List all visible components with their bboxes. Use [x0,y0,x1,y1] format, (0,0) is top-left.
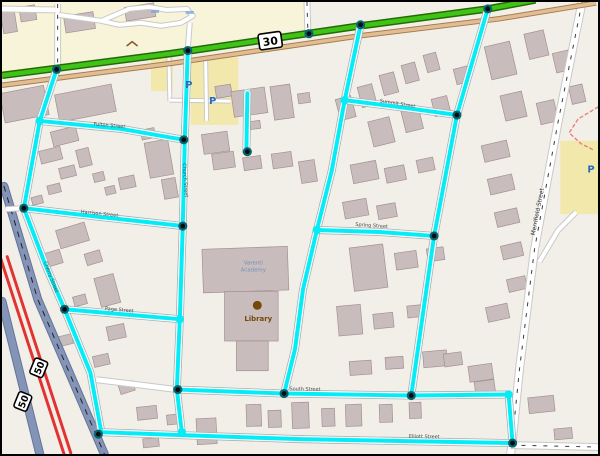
route-vertex[interactable] [504,390,512,398]
building [143,437,160,448]
building [409,402,421,418]
building [349,244,388,291]
route-node[interactable] [21,206,26,211]
route-vertex[interactable] [36,117,44,125]
route-node[interactable] [455,113,460,118]
parking-icon: P [185,80,192,91]
route-node[interactable] [358,22,363,27]
building [345,404,362,426]
building [385,356,404,369]
building [270,84,294,120]
route-node[interactable] [96,432,101,437]
route-node[interactable] [485,7,490,12]
building [322,408,336,426]
map-viewport[interactable]: 305050Fulton StreetHarrison StreetPage S… [0,0,600,456]
building [554,427,573,439]
building [468,363,494,382]
parking-lot-area [560,141,598,214]
route-vertex[interactable] [176,315,184,323]
building [373,312,394,329]
building [201,131,229,154]
building [336,304,362,336]
tiny-poi-label [186,11,194,14]
academy-label-line1: Varenti [244,261,263,267]
building [196,418,217,445]
route-node[interactable] [185,48,190,53]
route-node[interactable] [175,387,180,392]
building [528,395,555,413]
parking-icon: P [587,164,594,175]
building [243,155,263,170]
road [188,23,190,50]
building [161,177,178,199]
road [206,59,207,120]
building [212,151,236,170]
library-icon [253,301,262,310]
route-node[interactable] [54,67,59,72]
building [349,360,372,375]
route-node[interactable] [510,441,515,446]
building [394,250,418,270]
building [250,120,261,129]
building [136,405,157,420]
route-node[interactable] [307,31,312,36]
tiny-poi-label [151,10,159,13]
academy-label-line2: Academy [241,268,267,274]
street-label: Elliott Street [409,434,440,441]
map-frame: 305050Fulton StreetHarrison StreetPage S… [0,0,600,456]
route-node[interactable] [282,391,287,396]
building [297,92,310,103]
route-vertex[interactable] [178,428,186,436]
library-label: Library [244,315,272,323]
route-vertex[interactable] [341,96,349,104]
map-canvas[interactable]: 305050Fulton StreetHarrison StreetPage S… [2,2,598,454]
building [376,203,397,220]
building [268,410,281,427]
route-node[interactable] [245,149,250,154]
building [443,352,463,367]
building [215,84,233,98]
route-shield-30-0: 30 [258,31,283,50]
building [236,341,268,371]
route-vertex[interactable] [313,226,321,234]
building [271,151,293,168]
route-node[interactable] [181,137,186,142]
route-node[interactable] [432,234,437,239]
route-node[interactable] [62,307,67,312]
route-node[interactable] [409,393,414,398]
building [292,402,310,428]
road [2,9,56,10]
parking-icon: P [209,96,216,107]
building [342,198,368,219]
street-label: South Street [289,386,320,393]
shield-label: 30 [262,34,279,49]
road [170,100,231,101]
building [298,159,317,183]
road [307,2,308,34]
building [379,404,393,422]
route-node[interactable] [180,224,185,229]
building [246,404,262,426]
highlighted-route-segment[interactable] [246,93,247,151]
